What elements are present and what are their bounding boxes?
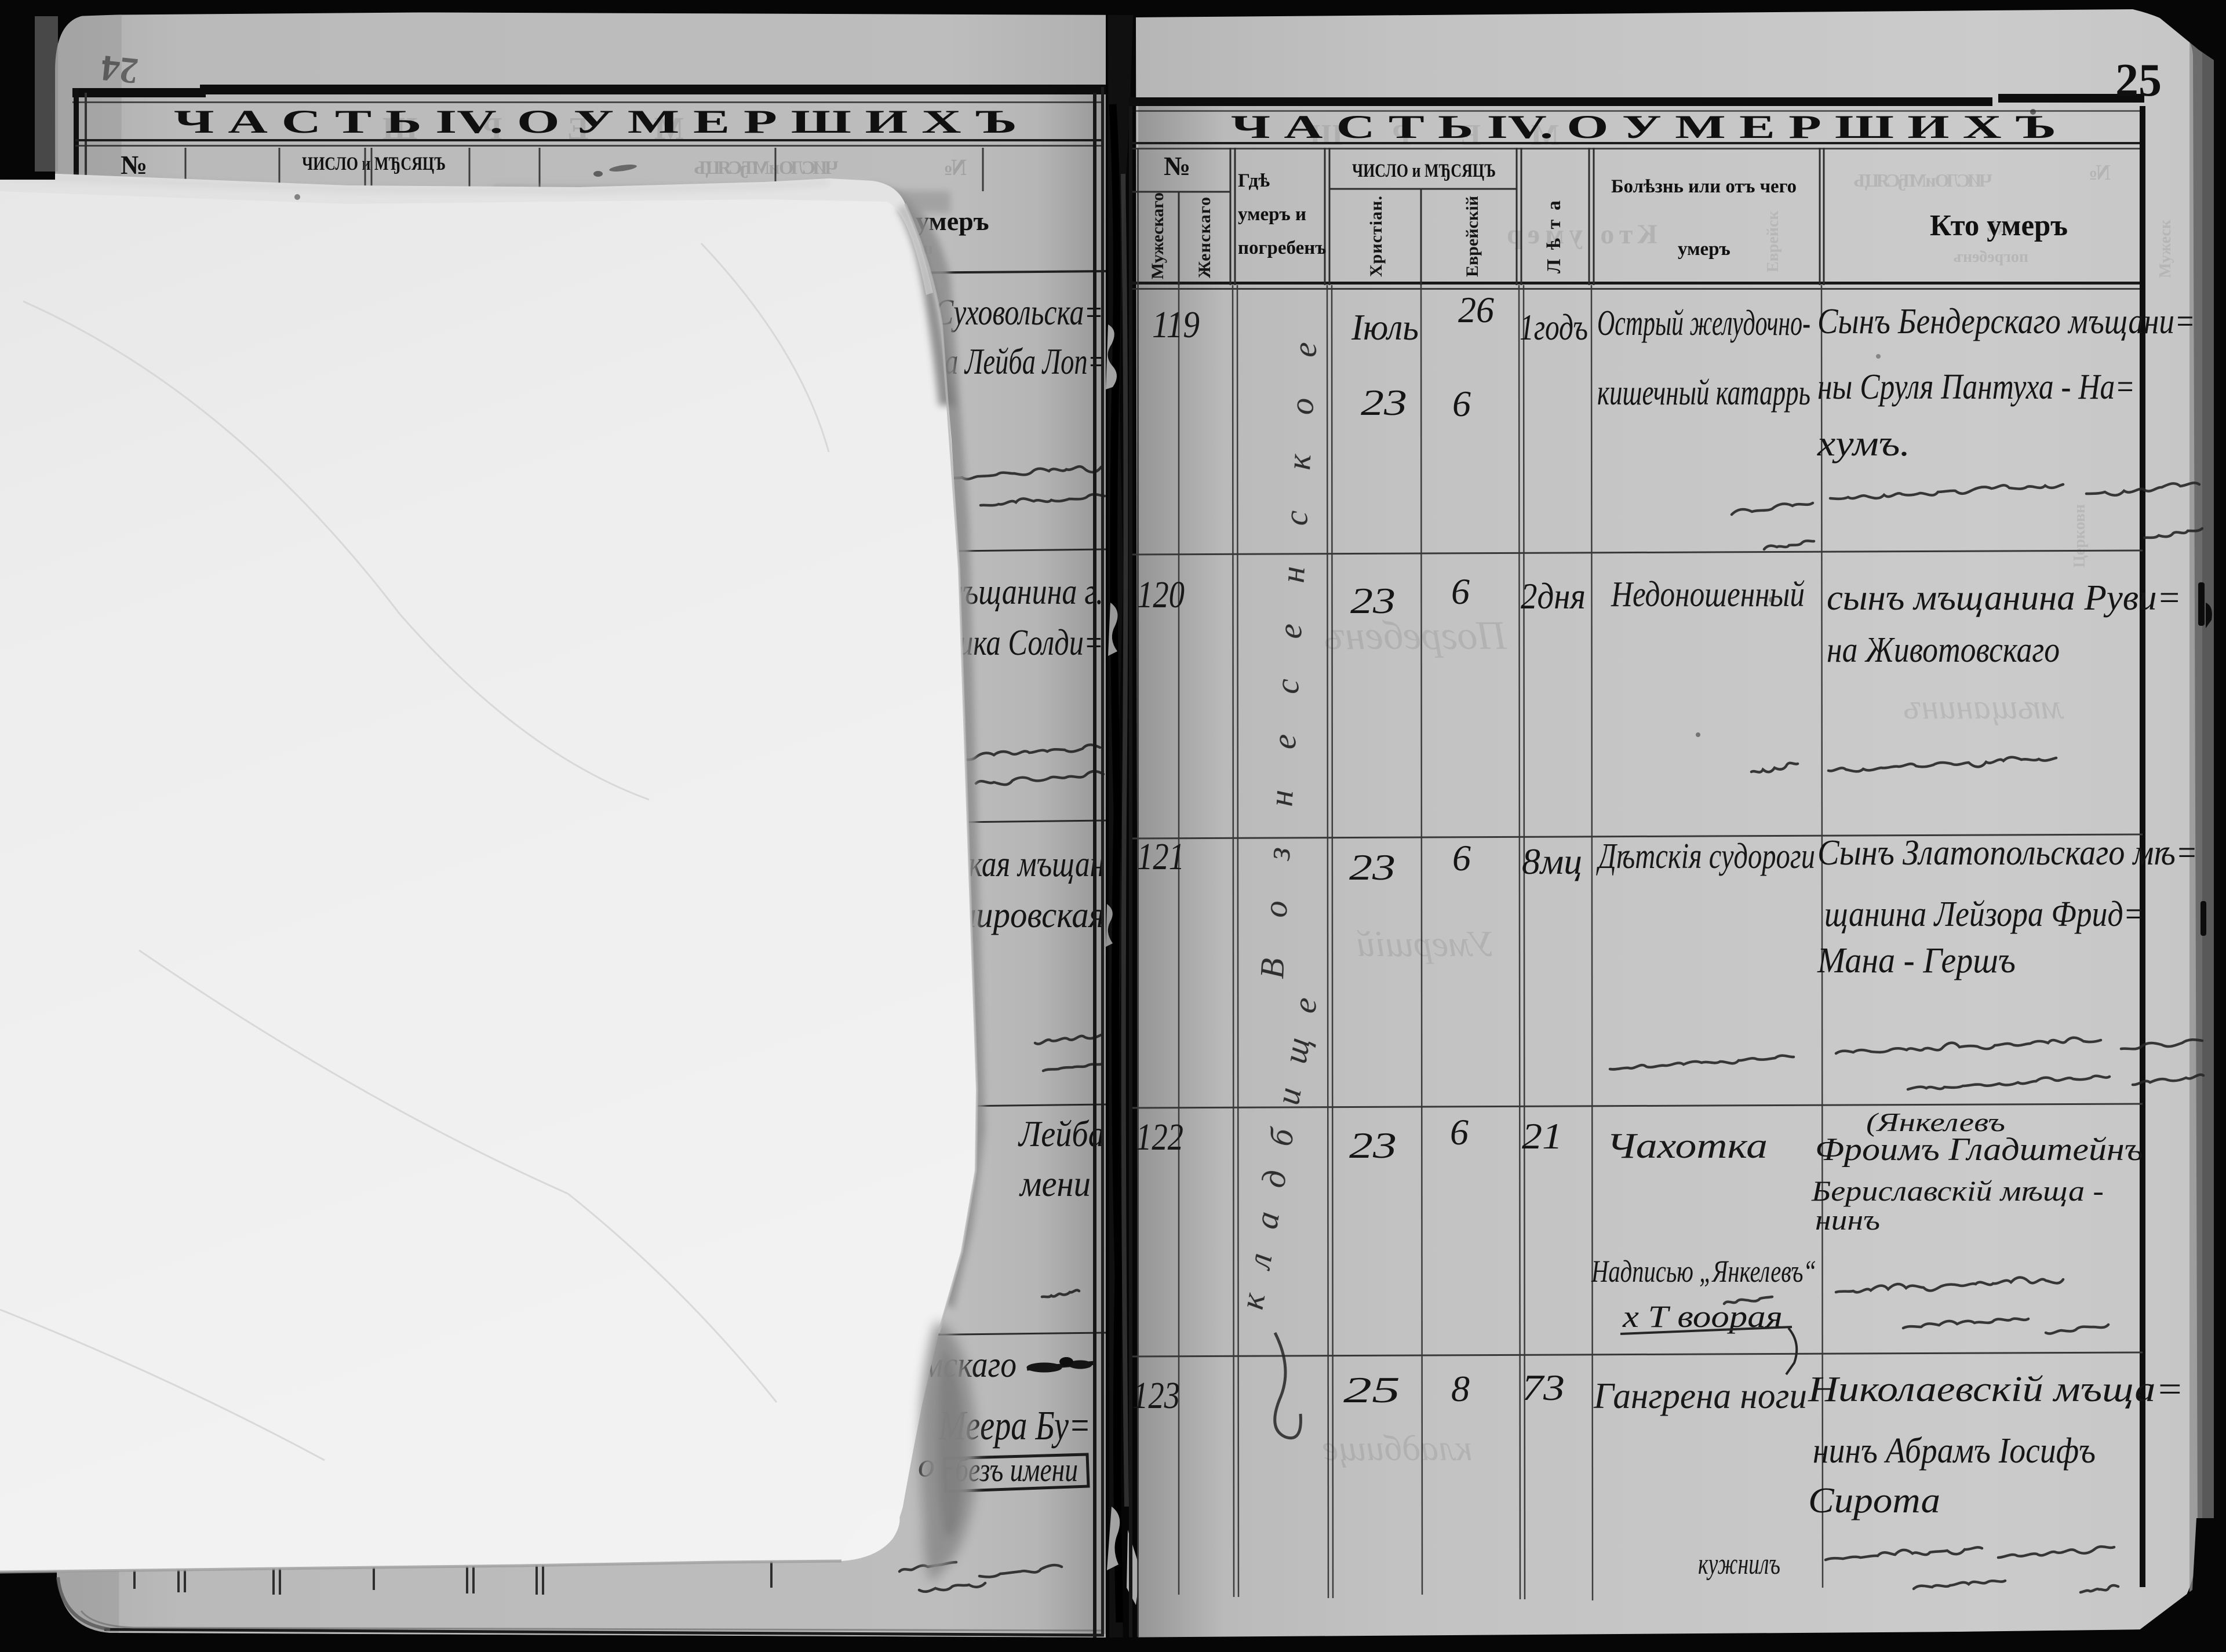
svg-text:хумъ.: хумъ. (1817, 424, 1910, 464)
svg-text:нинъ Абрамъ Іосифъ: нинъ Абрамъ Іосифъ (1813, 1431, 2096, 1471)
svg-text:Чахотка: Чахотка (1606, 1126, 1768, 1166)
svg-text:1годъ: 1годъ (1520, 307, 1588, 348)
svg-text:Іюль: Іюль (1351, 307, 1419, 348)
svg-text:6: 6 (1450, 1111, 1469, 1153)
svg-text:Мужеск: Мужеск (2156, 219, 2174, 278)
svg-text:Ч А С Т Ь IV. О У М Е Р Ш И: Ч А С Т Ь IV. О У М Е Р Ш И Х Ъ (174, 104, 1017, 140)
svg-text:Николаевскій мъща=: Николаевскій мъща= (1808, 1370, 2184, 1409)
svg-text:Сынъ Златопольскаго мѣ=: Сынъ Златопольскаго мѣ= (1817, 833, 2198, 873)
svg-text:Гдѣ: Гдѣ (1988, 217, 2017, 236)
svg-text:ЧИСЛО и МЂСЯЦЪ: ЧИСЛО и МЂСЯЦЪ (302, 154, 446, 174)
svg-text:на Животовскаго: на Животовскаго (1827, 630, 2060, 670)
svg-text:№: № (121, 150, 147, 180)
svg-text:погребенъ: погребенъ (1954, 248, 2028, 266)
svg-text:Сирота: Сирота (1808, 1481, 1940, 1520)
svg-text:Надписью „Янкелевъ“: Надписью „Янкелевъ“ (1591, 1254, 1816, 1289)
svg-text:Гангрена ноги: Гангрена ноги (1593, 1375, 1807, 1416)
svg-text:Еврейскій: Еврейскій (1463, 196, 1482, 277)
svg-text:мѣщанинъ: мѣщанинъ (1903, 688, 2064, 726)
svg-text:умеръ и: умеръ и (1238, 204, 1306, 225)
svg-text:26: 26 (1458, 289, 1494, 330)
svg-text:Недоношенный: Недоношенный (1611, 575, 1805, 614)
svg-text:6: 6 (1452, 837, 1471, 878)
svg-text:Женскаго: Женскаго (1195, 197, 1214, 278)
svg-text:ЧИСЛО и МЂСЯЦЪ: ЧИСЛО и МЂСЯЦЪ (1352, 161, 1496, 181)
svg-text:Христіан.: Христіан. (1367, 196, 1386, 277)
svg-text:2дня: 2дня (1521, 575, 1586, 617)
svg-text:8: 8 (1451, 1368, 1470, 1409)
svg-text:умеръ: умеръ (1678, 239, 1730, 260)
svg-text:8мц: 8мц (1522, 841, 1582, 882)
svg-text:Ч А С Т Ь IV. О У М Е Р Ш И: Ч А С Т Ь IV. О У М Е Р Ш И Х Ъ (1231, 109, 2056, 145)
svg-text:Мужескаго: Мужескаго (1148, 192, 1167, 279)
svg-text:6: 6 (1452, 383, 1471, 424)
svg-text:Болѣзнь или отъ чего: Болѣзнь или отъ чего (1611, 176, 1797, 197)
svg-text:сынъ мъщанина Руви=: сынъ мъщанина Руви= (1827, 578, 2181, 618)
svg-text:ны Сруля Пантуха - На=: ны Сруля Пантуха - На= (1817, 367, 2135, 407)
svg-text:ЧИСЛО и МЂСЯЦЪ: ЧИСЛО и МЂСЯЦЪ (1853, 170, 1992, 191)
svg-text:нинъ: нинъ (1815, 1204, 1880, 1236)
svg-text:Дѣтскія судороги: Дѣтскія судороги (1596, 837, 1815, 876)
svg-text:погребенъ: погребенъ (1238, 238, 1326, 258)
svg-text:Бериславскій мѣща -: Бериславскій мѣща - (1811, 1175, 2104, 1207)
svg-text:№: № (1164, 151, 1190, 181)
svg-text:кужнилъ: кужнилъ (1698, 1548, 1780, 1581)
svg-text:24: 24 (99, 48, 140, 92)
svg-text:23: 23 (1349, 1125, 1397, 1166)
svg-text:25: 25 (1343, 1369, 1400, 1410)
svg-text:кладбище: кладбище (1323, 1429, 1472, 1468)
svg-text:Еврейск: Еврейск (1764, 210, 1782, 272)
svg-text:121: 121 (1137, 836, 1185, 878)
svg-text:Острый желудочно-: Острый желудочно- (1597, 304, 1810, 343)
svg-text:Церковн: Церковн (2071, 504, 2089, 568)
svg-text:119: 119 (1152, 304, 1200, 346)
svg-text:120: 120 (1137, 574, 1185, 616)
svg-text:Мана - Гершъ: Мана - Гершъ (1817, 941, 2016, 980)
svg-text:Фроимъ Гладштейнъ: Фроимъ Гладштейнъ (1815, 1132, 2143, 1168)
svg-text:21: 21 (1522, 1115, 1562, 1157)
svg-text:73: 73 (1522, 1367, 1565, 1408)
svg-text:ЧИСЛО и МЂСЯЦЪ: ЧИСЛО и МЂСЯЦЪ (694, 158, 839, 178)
svg-text:123: 123 (1132, 1374, 1180, 1417)
svg-text:23: 23 (1361, 382, 1407, 423)
svg-text:№: № (2089, 161, 2111, 185)
svg-text:6: 6 (1451, 571, 1470, 612)
svg-text:23: 23 (1349, 847, 1396, 888)
svg-text:25: 25 (2115, 55, 2162, 106)
svg-text:122: 122 (1136, 1116, 1183, 1158)
svg-text:Гдѣ: Гдѣ (1238, 170, 1270, 191)
svg-text:кишечный катаррь: кишечный катаррь (1597, 373, 1810, 413)
svg-text:щанина Лейзора Фрид=: щанина Лейзора Фрид= (1824, 895, 2144, 934)
svg-text:№: № (943, 154, 967, 180)
svg-text:Сынъ Бендерскаго мъщани=: Сынъ Бендерскаго мъщани= (1817, 302, 2195, 341)
svg-text:23: 23 (1350, 580, 1396, 621)
svg-text:Умершій: Умершій (1357, 923, 1495, 964)
